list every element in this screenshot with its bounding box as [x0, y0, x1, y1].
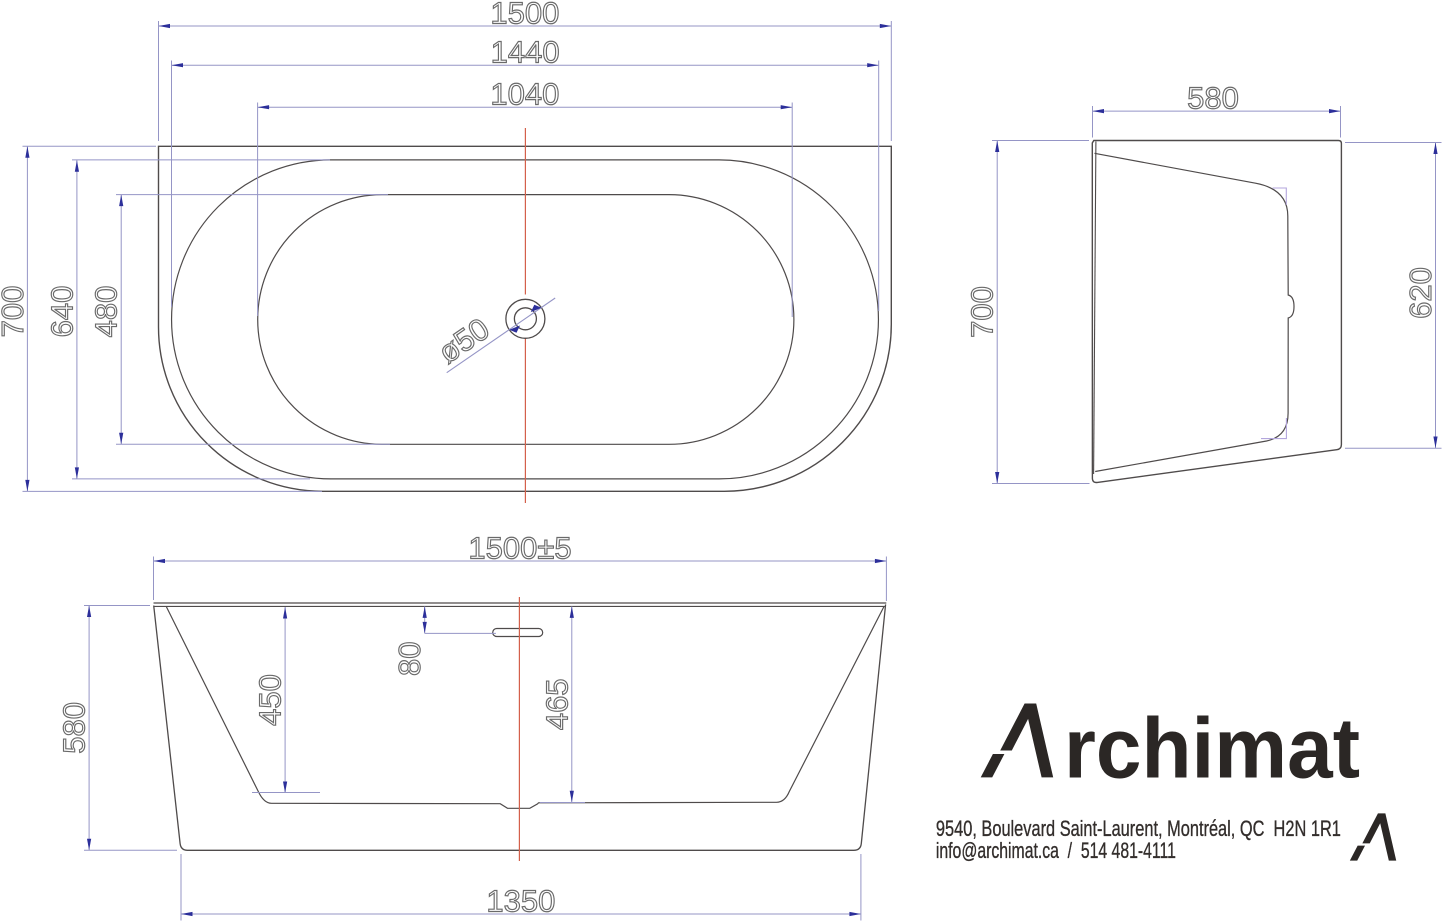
svg-text:620: 620	[1403, 267, 1438, 319]
svg-text:1040: 1040	[490, 77, 559, 112]
svg-text:1500: 1500	[490, 0, 559, 31]
svg-text:640: 640	[44, 286, 79, 338]
svg-text:580: 580	[57, 702, 92, 754]
svg-text:80: 80	[392, 641, 427, 675]
svg-text:1350: 1350	[486, 884, 555, 919]
svg-text:info@archimat.ca / 514 481-4: info@archimat.ca / 514 481-4111	[936, 838, 1176, 863]
svg-text:ø50: ø50	[432, 311, 496, 370]
svg-text:1440: 1440	[491, 35, 560, 70]
svg-text:450: 450	[253, 674, 288, 726]
svg-text:rchimat: rchimat	[1064, 701, 1360, 796]
svg-text:700: 700	[0, 286, 30, 338]
svg-text:580: 580	[1187, 81, 1239, 116]
svg-text:480: 480	[89, 286, 124, 338]
svg-text:700: 700	[965, 286, 1000, 338]
svg-text:465: 465	[539, 678, 574, 730]
svg-text:1500±5: 1500±5	[468, 531, 571, 566]
